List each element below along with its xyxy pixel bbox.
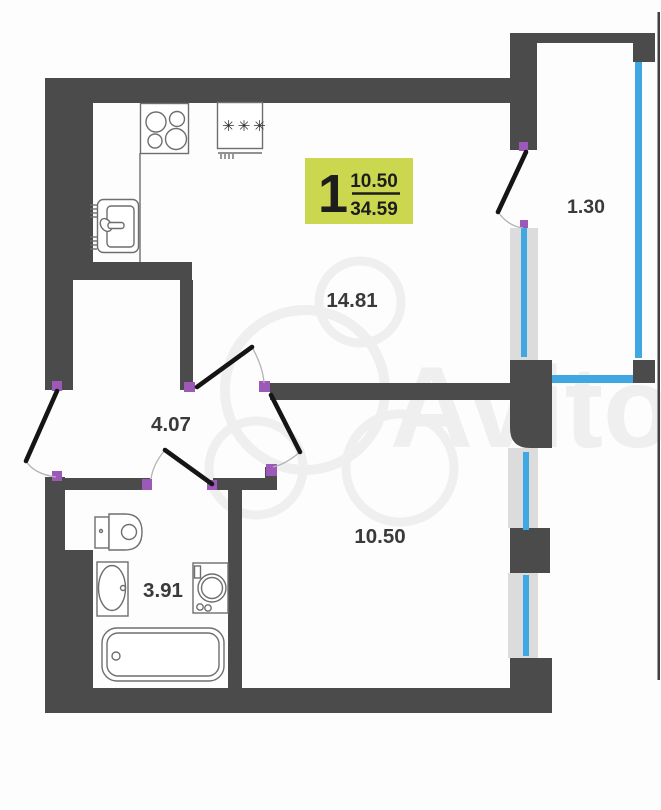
door-entrance <box>26 391 57 461</box>
window-room-2 <box>523 575 529 656</box>
badge-rooms-count: 1 <box>318 164 348 224</box>
room-label-hallway: 4.07 <box>151 413 191 436</box>
badge-living-area: 10.50 <box>350 171 398 192</box>
wall-window-pier-b <box>510 528 550 573</box>
wall-left-mid <box>45 280 73 390</box>
floor-plan-screenshot: Avito <box>0 0 661 810</box>
wall-bathroom-right <box>228 488 242 688</box>
fridge: ✳✳✳ <box>218 103 269 160</box>
room-label-room: 10.50 <box>354 525 405 548</box>
window-balcony-right <box>635 62 642 358</box>
washing-machine <box>193 563 228 613</box>
wall-left-upper <box>45 78 93 280</box>
room-label-balcony: 1.30 <box>567 196 605 218</box>
kitchen-sink <box>90 200 139 253</box>
window-balcony-bottom <box>552 375 633 383</box>
wall-balcony-corner-top <box>633 43 655 62</box>
area-badge: 1 10.50 34.59 <box>305 158 413 224</box>
wall-balcony-top <box>510 33 655 43</box>
fridge-stars: ✳✳✳ <box>222 117 269 135</box>
bathroom-sink <box>97 562 128 616</box>
room-label-kitchen-living: 14.81 <box>326 289 377 312</box>
wall-room-divider <box>270 383 510 400</box>
badge-total-area: 34.59 <box>350 199 398 220</box>
window-balcony-partition <box>521 228 527 357</box>
wall-top <box>45 78 537 103</box>
wall-bottom <box>45 688 552 713</box>
toilet <box>95 514 142 550</box>
window-room-1 <box>523 452 529 530</box>
wall-window-pier-a <box>510 360 552 448</box>
wall-kitchen-horizontal <box>45 262 192 280</box>
wall-balcony-corner-bottom <box>633 360 655 383</box>
bathtub <box>102 628 224 681</box>
wall-window-pier-c <box>510 658 552 690</box>
wall-bathroom-top-right <box>213 478 277 490</box>
floor-plan: Avito <box>0 0 661 810</box>
wall-left-bottom <box>45 550 93 690</box>
kitchen-fixtures: ✳✳✳ <box>90 103 269 263</box>
wall-kitchen-vertical <box>180 280 193 390</box>
door-balcony <box>498 152 526 212</box>
page-edge-line <box>658 12 661 680</box>
stove <box>141 104 189 154</box>
room-label-bathroom: 3.91 <box>143 579 183 602</box>
wall-balcony-left <box>510 43 537 150</box>
